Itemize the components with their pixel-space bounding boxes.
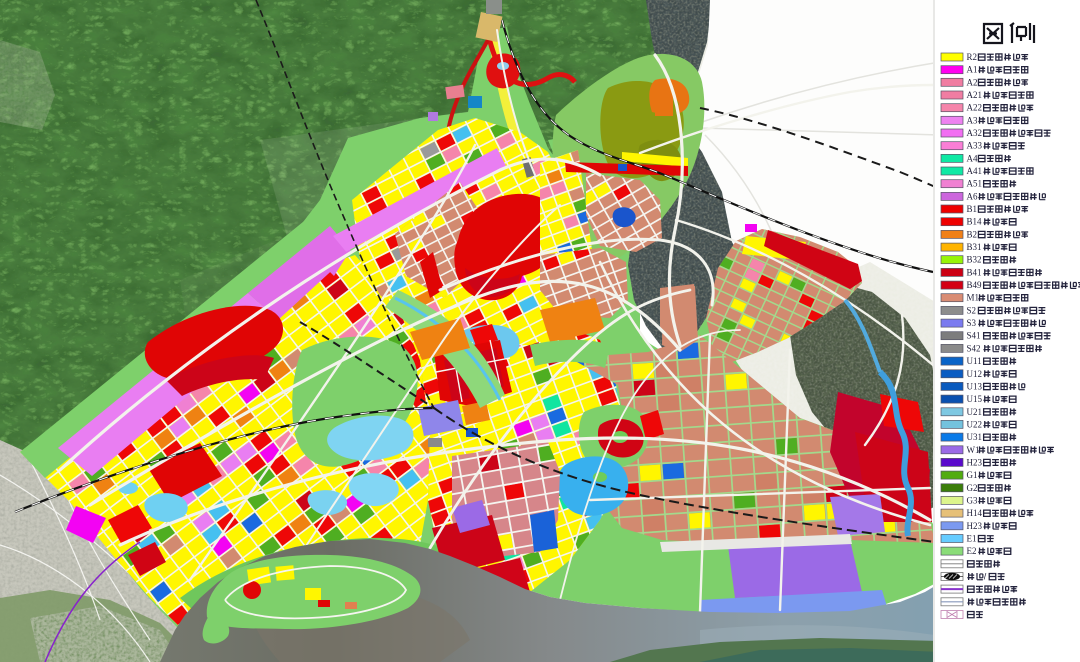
svg-text:A3: A3 (967, 115, 978, 125)
svg-text:U22: U22 (967, 419, 983, 429)
svg-text:B49: B49 (967, 280, 983, 290)
svg-text:U12: U12 (967, 369, 983, 379)
svg-text:S42: S42 (967, 343, 981, 353)
svg-text:M1: M1 (967, 293, 980, 303)
svg-text:A33: A33 (967, 141, 983, 151)
svg-text:B14: B14 (967, 217, 983, 227)
svg-text:A41: A41 (967, 166, 983, 176)
svg-text:A51: A51 (967, 179, 983, 189)
svg-text:A32: A32 (967, 128, 983, 138)
svg-text:G1: G1 (967, 470, 978, 480)
svg-text:B32: B32 (967, 255, 982, 265)
svg-text:U31: U31 (967, 432, 983, 442)
svg-text:U21: U21 (967, 407, 983, 417)
svg-text:U13: U13 (967, 381, 983, 391)
svg-text:B31: B31 (967, 242, 982, 252)
svg-text:H23: H23 (967, 521, 983, 531)
svg-text:S2: S2 (967, 305, 977, 315)
svg-text:G2: G2 (967, 483, 978, 493)
svg-text:A22: A22 (967, 103, 983, 113)
svg-text:W1: W1 (967, 445, 980, 455)
svg-text:B2: B2 (967, 229, 978, 239)
svg-text:S3: S3 (967, 318, 977, 328)
svg-text:B1: B1 (967, 204, 978, 214)
svg-text:U15: U15 (967, 394, 983, 404)
svg-text:A6: A6 (967, 191, 978, 201)
svg-text:U11: U11 (967, 356, 982, 366)
svg-text:A21: A21 (967, 90, 983, 100)
svg-text:R2: R2 (967, 52, 978, 62)
svg-text:E2: E2 (967, 546, 977, 556)
svg-text:H23: H23 (967, 457, 983, 467)
svg-text:A4: A4 (967, 153, 978, 163)
svg-text:G3: G3 (967, 495, 978, 505)
svg-text:A1: A1 (967, 65, 978, 75)
svg-text:B41: B41 (967, 267, 982, 277)
svg-text:S41: S41 (967, 331, 981, 341)
svg-text:H14: H14 (967, 508, 983, 518)
svg-text:A2: A2 (967, 77, 978, 87)
svg-text:E1: E1 (967, 534, 977, 544)
